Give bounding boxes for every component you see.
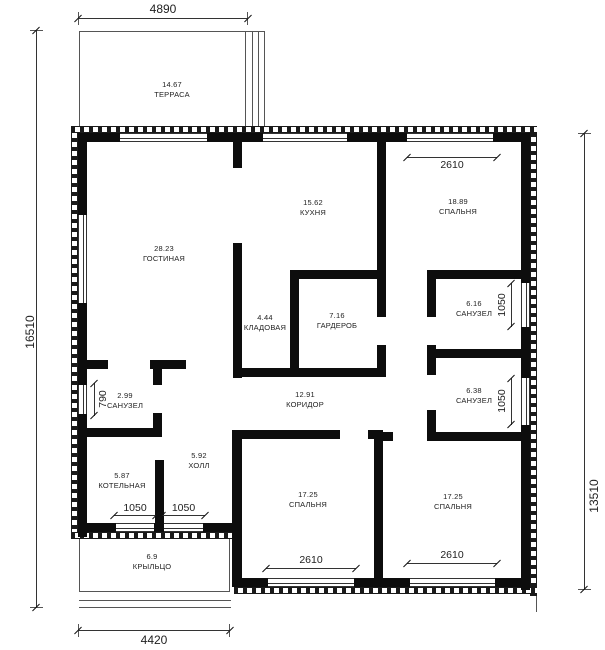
room-name: КЛАДОВАЯ — [244, 323, 286, 333]
window-bedroom-br-bottom — [410, 578, 495, 587]
room-name: САНУЗЕЛ — [456, 396, 492, 406]
room-name: ХОЛЛ — [188, 461, 209, 471]
room-name: САНУЗЕЛ — [107, 401, 143, 411]
dimension-line — [94, 383, 95, 416]
room-area: 5.87 — [98, 471, 145, 481]
window-bedroom-bl-bottom — [268, 578, 354, 587]
exterior-wall-hatch — [234, 587, 537, 594]
room-label-living: 28.23 ГОСТИНАЯ — [143, 244, 185, 264]
dimension-value: 1050 — [114, 502, 156, 514]
room-name: СПАЛЬНЯ — [434, 502, 472, 512]
wall-interior — [374, 430, 383, 578]
room-area: 4.44 — [244, 313, 286, 323]
dimension-line — [266, 568, 356, 569]
dimension-value: 4890 — [78, 2, 248, 16]
room-area: 6.16 — [456, 299, 492, 309]
room-label-terrace: 14.67 ТЕРРАСА — [154, 80, 190, 100]
room-name: КРЫЛЬЦО — [133, 562, 171, 572]
room-name: СПАЛЬНЯ — [289, 500, 327, 510]
dimension-line — [584, 133, 585, 590]
room-name: СПАЛЬНЯ — [439, 207, 477, 217]
dimension-line — [114, 515, 156, 516]
wall-exterior-right — [521, 133, 530, 590]
room-area: 17.25 — [434, 492, 472, 502]
porch-step-line — [79, 607, 231, 608]
wall-interior — [427, 432, 521, 441]
wall-interior — [233, 243, 242, 378]
dimension-value: 13510 — [587, 477, 601, 515]
wall-interior — [377, 345, 386, 368]
room-area: 18.89 — [439, 197, 477, 207]
terrace-column-line — [252, 31, 253, 131]
window-living-left — [78, 215, 87, 303]
window-bath2-left — [78, 385, 87, 414]
dimension-line — [407, 563, 497, 564]
dimension-line — [78, 630, 230, 631]
window-boiler-bottom — [116, 523, 154, 532]
room-name: ГАРДЕРОБ — [317, 321, 357, 331]
exterior-wall-hatch — [530, 133, 537, 596]
wall-interior — [427, 349, 521, 358]
room-name: ТЕРРАСА — [154, 90, 190, 100]
dimension-value: 2610 — [407, 549, 497, 561]
exterior-wall-hatch — [71, 133, 78, 538]
window-bath3-right — [521, 378, 530, 425]
room-name: САНУЗЕЛ — [456, 309, 492, 319]
room-name: КОТЕЛЬНАЯ — [98, 481, 145, 491]
room-label-bedroom-top: 18.89 СПАЛЬНЯ — [439, 197, 477, 217]
dimension-line — [511, 283, 512, 327]
wall-exterior-connector — [232, 430, 242, 587]
dimension-value: 2610 — [407, 159, 497, 171]
room-label-pantry: 4.44 КЛАДОВАЯ — [244, 313, 286, 333]
room-area: 17.25 — [289, 490, 327, 500]
room-label-bathroom-2: 2.99 САНУЗЕЛ — [107, 391, 143, 411]
dimension-value: 1050 — [162, 502, 205, 514]
wall-interior — [377, 142, 386, 317]
wall-interior — [427, 358, 436, 375]
dimension-left: 16510 — [36, 30, 37, 608]
window-bedroom-top — [407, 133, 493, 142]
porch-step-line — [79, 600, 231, 601]
wall-exterior-left — [78, 133, 87, 537]
wall-interior — [150, 360, 186, 369]
terrace-column-line — [245, 31, 246, 131]
room-label-bedroom-br: 17.25 СПАЛЬНЯ — [434, 492, 472, 512]
dimension-bath1-window: 1050 — [511, 283, 512, 327]
dimension-value: 2610 — [266, 554, 356, 566]
room-label-corridor: 12.91 КОРИДОР — [286, 390, 324, 410]
wall-interior — [290, 270, 386, 279]
window-bath1-right — [521, 283, 530, 327]
room-name: КУХНЯ — [300, 208, 326, 218]
room-label-bathroom-3: 6.38 САНУЗЕЛ — [456, 386, 492, 406]
room-area: 28.23 — [143, 244, 185, 254]
dimension-line — [162, 515, 205, 516]
window-hall-bottom — [164, 523, 203, 532]
dimension-value: 790 — [97, 387, 109, 411]
dimension-value: 1050 — [496, 292, 508, 318]
dimension-line — [78, 18, 248, 19]
window-living-top — [120, 133, 207, 142]
exterior-wall-hatch — [71, 126, 537, 133]
room-area: 14.67 — [154, 80, 190, 90]
dimension-value: 1050 — [496, 388, 508, 414]
dimension-value: 4420 — [78, 633, 230, 647]
room-label-bathroom-1: 6.16 САНУЗЕЛ — [456, 299, 492, 319]
floor-plan: 14.67 ТЕРРАСА 28.23 ГОСТИНАЯ 15.62 КУХНЯ… — [0, 0, 605, 650]
room-area: 15.62 — [300, 198, 326, 208]
wall-interior — [78, 360, 108, 369]
wall-interior — [427, 279, 436, 317]
wall-interior — [87, 428, 162, 437]
dimension-line — [511, 378, 512, 425]
wall-interior — [233, 368, 386, 377]
dimension-bath3-window: 1050 — [511, 378, 512, 425]
terrace-column-line — [258, 31, 259, 131]
wall-interior — [233, 142, 242, 168]
room-name: ГОСТИНАЯ — [143, 254, 185, 264]
room-area: 6.38 — [456, 386, 492, 396]
room-area: 6.9 — [133, 552, 171, 562]
window-kitchen-top — [263, 133, 347, 142]
wall-interior — [153, 413, 162, 428]
dimension-value: 16510 — [23, 313, 37, 351]
room-label-porch: 6.9 КРЫЛЬЦО — [133, 552, 171, 572]
dimension-hall-window: 1050 — [162, 515, 205, 516]
room-label-kitchen: 15.62 КУХНЯ — [300, 198, 326, 218]
dimension-bedroom-bl-window: 2610 — [266, 568, 356, 569]
wall-interior — [153, 369, 162, 385]
dimension-bedroom-top-window: 2610 — [407, 157, 497, 158]
room-area: 5.92 — [188, 451, 209, 461]
wall-interior — [234, 430, 340, 439]
wall-interior — [383, 432, 393, 441]
room-label-bedroom-bl: 17.25 СПАЛЬНЯ — [289, 490, 327, 510]
room-label-boiler: 5.87 КОТЕЛЬНАЯ — [98, 471, 145, 491]
room-label-hall: 5.92 ХОЛЛ — [188, 451, 209, 471]
room-area: 7.16 — [317, 311, 357, 321]
dimension-bath2-window: 790 — [94, 383, 95, 416]
wall-interior — [427, 270, 521, 279]
room-name: КОРИДОР — [286, 400, 324, 410]
dimension-top: 4890 — [78, 18, 248, 19]
wall-interior — [427, 410, 436, 432]
wall-interior — [290, 270, 299, 368]
room-area: 2.99 — [107, 391, 143, 401]
exterior-wall-hatch — [71, 532, 234, 539]
dimension-right: 13510 — [584, 133, 585, 590]
dimension-bottom: 4420 — [78, 630, 230, 631]
room-area: 12.91 — [286, 390, 324, 400]
dimension-boiler-window: 1050 — [114, 515, 156, 516]
dimension-line — [407, 157, 497, 158]
wall-exterior-bottom-left — [78, 523, 234, 532]
dimension-bedroom-br-window: 2610 — [407, 563, 497, 564]
room-label-wardrobe: 7.16 ГАРДЕРОБ — [317, 311, 357, 331]
